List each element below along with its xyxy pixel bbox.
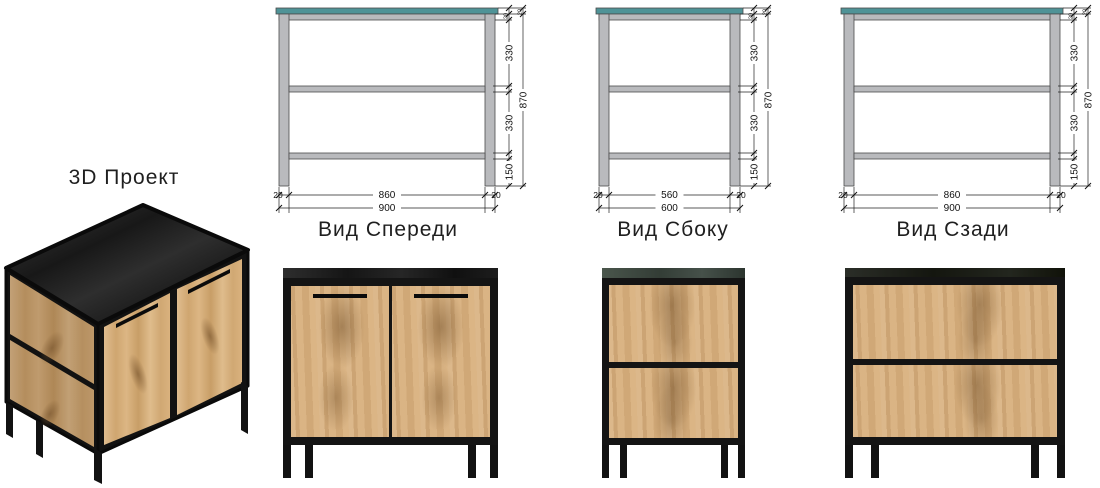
- front-view-label: Вид Спереди: [273, 218, 503, 242]
- render-front-body: [283, 278, 498, 445]
- dim-width-outer: 900: [944, 203, 961, 214]
- dim-gap-top: 330: [505, 44, 516, 61]
- drawing-sheet: 3D Проект: [0, 0, 1100, 488]
- technical-drawing-front: 86020209003303301508702020: [273, 0, 535, 216]
- dim-width-inner: 560: [661, 190, 678, 201]
- dim-width-inner: 860: [944, 190, 961, 201]
- side-view-label: Вид Сбоку: [593, 218, 753, 242]
- dim-gap-middle: 330: [750, 114, 761, 131]
- dim-frame-height: 870: [1084, 91, 1095, 108]
- dim-leg-left: 20: [838, 190, 848, 200]
- dim-frame-height: 870: [764, 91, 775, 108]
- dim-leg-height: 150: [1070, 163, 1081, 180]
- render-side-top-panel: [602, 268, 745, 278]
- top-rail: [599, 14, 740, 20]
- dim-gap-top: 330: [750, 44, 761, 61]
- render-side-view: [602, 268, 745, 480]
- dim-gap-top: 330: [1070, 44, 1081, 61]
- door-right: [392, 286, 490, 437]
- dim-leg-right: 20: [1056, 190, 1066, 200]
- dim-frame-height: 870: [519, 91, 530, 108]
- shelf-1: [854, 86, 1050, 92]
- cabinet-leg: [468, 445, 476, 478]
- cabinet-leg: [845, 445, 853, 478]
- tabletop: [841, 8, 1063, 14]
- dim-gap-middle: 330: [505, 114, 516, 131]
- tabletop: [276, 8, 498, 14]
- cabinet-leg: [620, 445, 627, 478]
- door-handle-right: [414, 294, 468, 298]
- leg-left: [279, 14, 289, 186]
- shelf-2: [289, 153, 485, 159]
- technical-drawing-rear: 86020209003303301508702020: [838, 0, 1100, 216]
- tabletop: [596, 8, 743, 14]
- cabinet-leg: [283, 445, 291, 478]
- shelf-1: [609, 86, 730, 92]
- cabinet-3d-leg: [94, 448, 102, 484]
- rear-panel-bottom: [853, 365, 1057, 437]
- dim-top-thickness: 20: [1069, 13, 1075, 19]
- door-handle-left: [313, 294, 367, 298]
- cabinet-leg: [721, 445, 728, 478]
- dim-width-outer: 600: [661, 203, 678, 214]
- technical-drawing-side-container: 56020206003303301508702020: [593, 0, 780, 221]
- render-front-view: [283, 268, 498, 480]
- top-rail: [844, 14, 1060, 20]
- cabinet-leg: [871, 445, 879, 478]
- dim-width-outer: 900: [379, 203, 396, 214]
- side-panel-bottom: [609, 368, 738, 438]
- shelf-1: [289, 86, 485, 92]
- render-front-top-panel: [283, 268, 498, 278]
- dim-leg-left: 20: [593, 190, 603, 200]
- rear-view-label: Вид Сзади: [838, 218, 1068, 242]
- door-left: [291, 286, 389, 437]
- cabinet-leg: [305, 445, 313, 478]
- render-rear-view: [845, 268, 1065, 480]
- dim-gap-middle: 330: [1070, 114, 1081, 131]
- cabinet-3d-view: [2, 196, 264, 488]
- leg-left: [844, 14, 854, 186]
- top-rail: [279, 14, 495, 20]
- render-rear-body: [845, 277, 1065, 445]
- leg-right: [485, 14, 495, 186]
- dim-leg-height: 150: [750, 163, 761, 180]
- project-3d-label: 3D Проект: [8, 166, 240, 190]
- leg-left: [599, 14, 609, 186]
- cabinet-leg: [602, 445, 609, 478]
- render-rear-legs: [845, 445, 1065, 480]
- render-rear-top-panel: [845, 268, 1065, 277]
- dim-width-inner: 860: [379, 190, 396, 201]
- technical-drawing-front-container: 86020209003303301508702020: [273, 0, 535, 221]
- dim-top-thickness-outer: 20: [763, 9, 769, 15]
- rear-panel-top: [853, 285, 1057, 359]
- dim-leg-right: 20: [491, 190, 501, 200]
- cabinet-leg: [490, 445, 498, 478]
- dim-leg-left: 20: [273, 190, 283, 200]
- technical-drawing-rear-container: 86020209003303301508702020: [838, 0, 1100, 221]
- cabinet-3d-leg: [6, 402, 13, 438]
- cabinet-leg: [1031, 445, 1039, 478]
- dim-top-thickness: 20: [504, 13, 510, 19]
- dim-leg-height: 150: [505, 163, 516, 180]
- cabinet-3d-leg: [241, 382, 248, 434]
- render-front-legs: [283, 445, 498, 480]
- leg-right: [1050, 14, 1060, 186]
- dim-leg-right: 20: [736, 190, 746, 200]
- render-side-legs: [602, 445, 745, 480]
- render-side-body: [602, 278, 745, 445]
- dim-top-thickness-outer: 20: [1083, 9, 1089, 15]
- cabinet-leg: [738, 445, 745, 478]
- dim-top-thickness: 20: [749, 13, 755, 19]
- side-panel-top: [609, 285, 738, 362]
- technical-drawing-side: 56020206003303301508702020: [593, 0, 780, 216]
- shelf-2: [609, 153, 730, 159]
- cabinet-3d-leg: [36, 420, 43, 458]
- cabinet-leg: [1057, 445, 1065, 478]
- dim-top-thickness-outer: 20: [518, 9, 524, 15]
- leg-right: [730, 14, 740, 186]
- shelf-2: [854, 153, 1050, 159]
